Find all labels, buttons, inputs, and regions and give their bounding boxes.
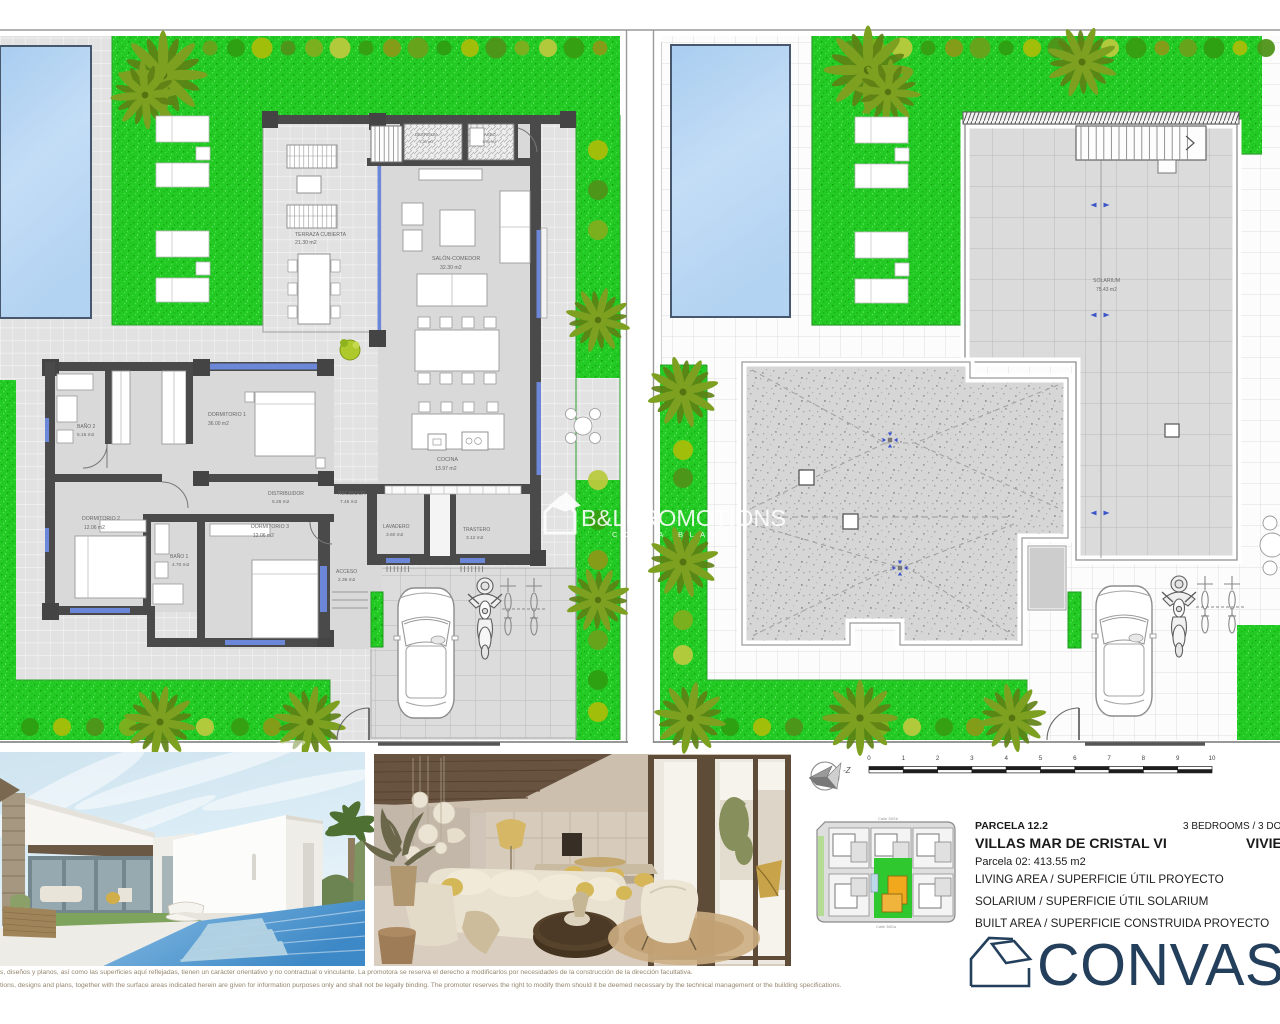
svg-text:12.06 m2: 12.06 m2 <box>84 525 105 531</box>
svg-text:12.06 m2: 12.06 m2 <box>253 533 274 539</box>
svg-text:7.45 m2: 7.45 m2 <box>340 499 358 505</box>
svg-text:SOLARIUM: SOLARIUM <box>1093 278 1120 284</box>
svg-text:Calle 38Ga: Calle 38Ga <box>876 924 897 929</box>
svg-text:13.97 m2: 13.97 m2 <box>435 466 457 472</box>
svg-text:ACCESO: ACCESO <box>336 569 357 575</box>
svg-text:BAÑO 1: BAÑO 1 <box>170 553 189 560</box>
svg-text:32.30 m2: 32.30 m2 <box>440 265 462 271</box>
svg-text:4.70 m2: 4.70 m2 <box>172 562 190 568</box>
svg-text:TRASTERO: TRASTERO <box>463 527 490 533</box>
svg-text:P: P <box>374 596 377 601</box>
svg-text:2.36 m2: 2.36 m2 <box>338 577 356 583</box>
svg-text:7: 7 <box>1107 755 1111 762</box>
svg-text:3: 3 <box>970 755 974 762</box>
svg-text:DORMITORIO 3: DORMITORIO 3 <box>251 524 289 530</box>
svg-text:0: 0 <box>867 755 871 762</box>
svg-text:1.35 m2: 1.35 m2 <box>419 139 434 144</box>
svg-text:s, diseños y planos, así como: s, diseños y planos, así como las superf… <box>0 969 693 976</box>
svg-text:R: R <box>374 616 377 621</box>
svg-text:10: 10 <box>1209 755 1216 762</box>
svg-text:3 BEDROOMS / 3 DORMITORIOS: 3 BEDROOMS / 3 DORMITORIOS <box>1183 821 1280 832</box>
svg-text:3.12 m2: 3.12 m2 <box>466 535 484 541</box>
svg-text:1: 1 <box>902 755 906 762</box>
svg-text:SALÓN-COMEDOR: SALÓN-COMEDOR <box>432 255 480 262</box>
svg-text:BAÑO 2: BAÑO 2 <box>77 423 96 430</box>
svg-text:BUILT AREA / SUPERFICIE CONSTR: BUILT AREA / SUPERFICIE CONSTRUIDA PROYE… <box>975 917 1269 930</box>
svg-text:DORMITORIO 2: DORMITORIO 2 <box>82 516 120 522</box>
svg-text:LAVADERO: LAVADERO <box>383 524 410 530</box>
svg-text:SOLARIUM / SUPERFICIE ÚTIL SOL: SOLARIUM / SUPERFICIE ÚTIL SOLARIUM <box>975 895 1208 908</box>
svg-text:75.43 m2: 75.43 m2 <box>1096 287 1117 293</box>
svg-text:CONVAS: CONVAS <box>1037 932 1280 998</box>
svg-text:2: 2 <box>936 755 940 762</box>
svg-text:RECIBIDOR: RECIBIDOR <box>338 491 366 497</box>
svg-text:C: C <box>374 626 377 631</box>
svg-text:DISTRIBUIDOR: DISTRIBUIDOR <box>268 491 304 497</box>
svg-text:8: 8 <box>1142 755 1146 762</box>
svg-text:PARCELA 12.2: PARCELA 12.2 <box>975 820 1048 832</box>
svg-text:5.26 m2: 5.26 m2 <box>272 499 290 505</box>
svg-text:4: 4 <box>1004 755 1008 762</box>
svg-text:1.95 m2: 1.95 m2 <box>482 139 497 144</box>
svg-text:3.60 m2: 3.60 m2 <box>386 532 404 538</box>
svg-text:5.15 m2: 5.15 m2 <box>77 432 95 438</box>
svg-text:Parcela 02: 413.55 m2: Parcela 02: 413.55 m2 <box>975 856 1086 868</box>
svg-text:5: 5 <box>1039 755 1043 762</box>
svg-text:tions, designs and plans, toge: tions, designs and plans, together with … <box>0 982 842 989</box>
svg-text:COCINA: COCINA <box>437 457 458 463</box>
svg-text:DORMITORIO 1: DORMITORIO 1 <box>208 412 246 418</box>
svg-text:VILLAS MAR DE CRISTAL VI: VILLAS MAR DE CRISTAL VI <box>975 836 1167 852</box>
svg-text:ASEO: ASEO <box>484 132 496 137</box>
svg-text:-Z: -Z <box>843 766 852 775</box>
svg-text:9: 9 <box>1176 755 1180 762</box>
svg-text:6: 6 <box>1073 755 1077 762</box>
svg-text:TERRAZA CUBIERTA: TERRAZA CUBIERTA <box>295 232 347 238</box>
svg-text:VIVIENDA 02: VIVIENDA 02 <box>1246 835 1280 851</box>
svg-text:B&LPROMOTIONS: B&LPROMOTIONS <box>581 505 786 531</box>
svg-text:COSTA BLANCA: COSTA BLANCA <box>612 530 747 539</box>
svg-text:21.30 m2: 21.30 m2 <box>295 240 317 246</box>
svg-text:A: A <box>374 606 377 611</box>
svg-text:36.00 m2: 36.00 m2 <box>208 421 229 427</box>
svg-text:LIVING AREA / SUPERFICIE ÚTIL: LIVING AREA / SUPERFICIE ÚTIL PROYECTO <box>975 873 1224 886</box>
svg-text:DESPENSA: DESPENSA <box>415 132 438 137</box>
svg-text:Calle 38Gb: Calle 38Gb <box>878 816 899 821</box>
